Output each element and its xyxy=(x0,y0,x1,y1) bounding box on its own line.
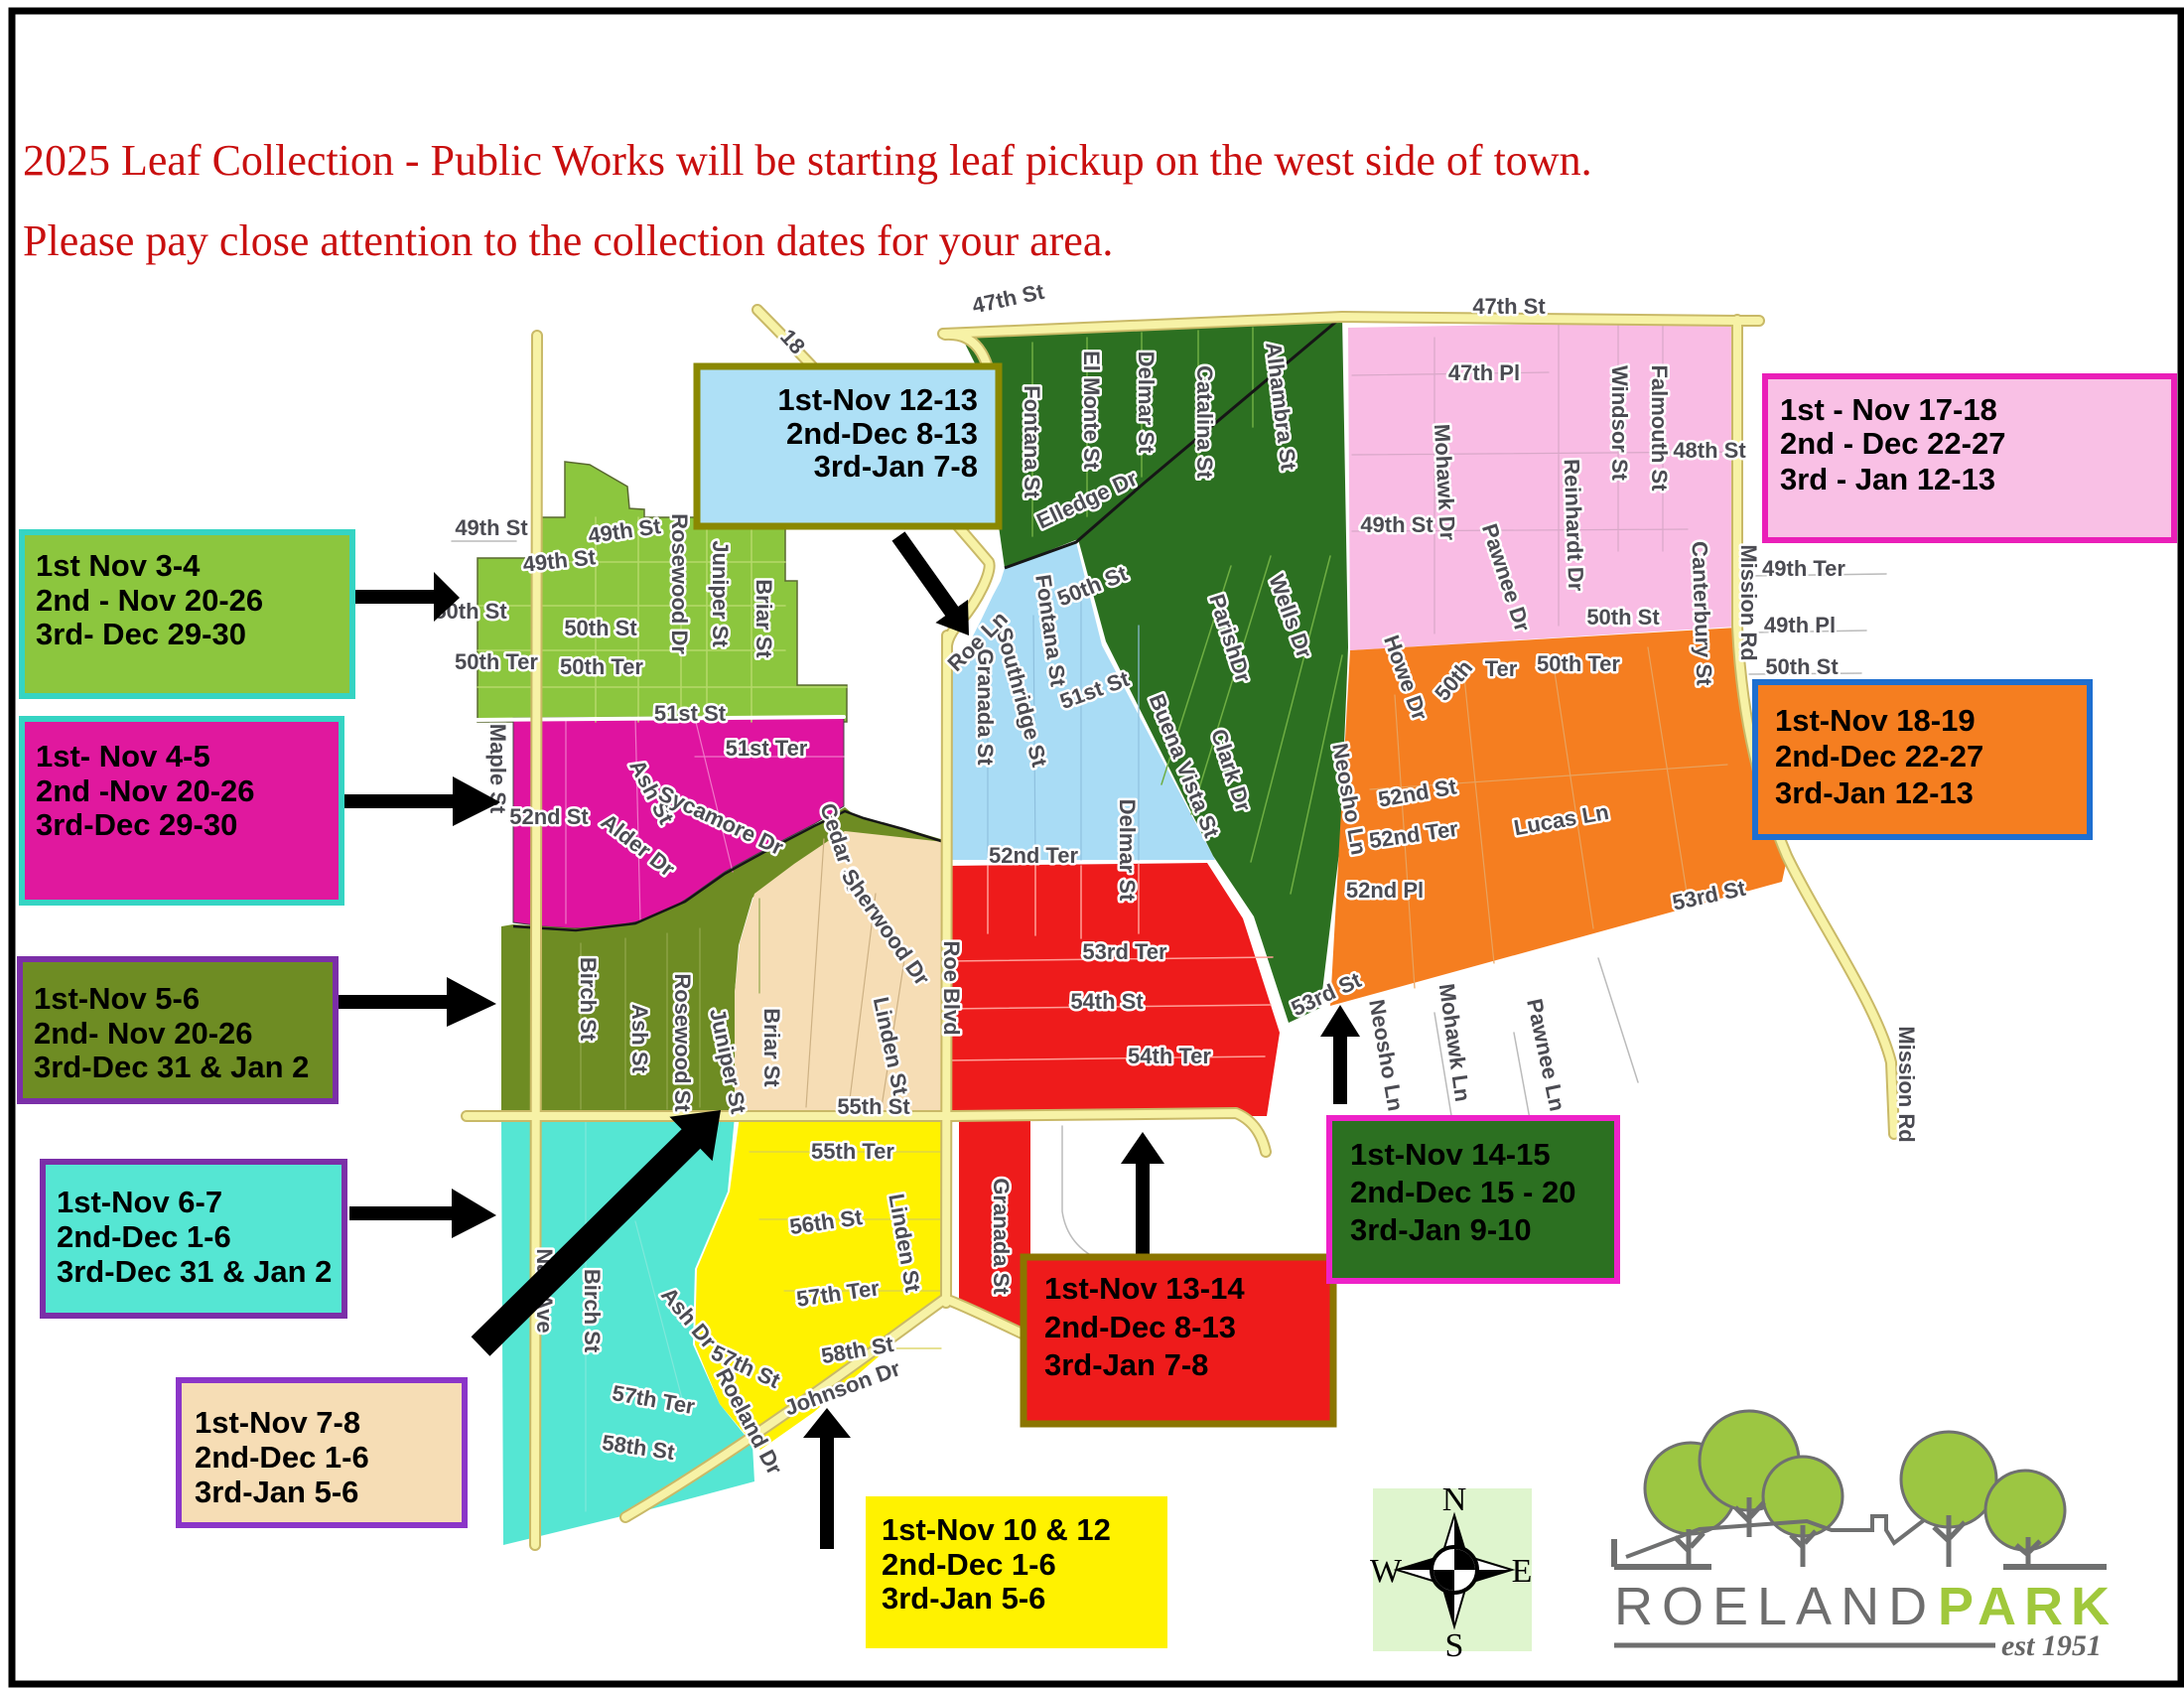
svg-text:Catalina St: Catalina St xyxy=(1192,365,1217,479)
svg-text:3rd-Jan 5-6: 3rd-Jan 5-6 xyxy=(882,1581,1045,1616)
svg-text:1st- Nov 4-5: 1st- Nov 4-5 xyxy=(36,739,210,774)
svg-text:2nd - Dec 22-27: 2nd - Dec 22-27 xyxy=(1780,426,2005,461)
svg-text:2nd - Nov 20-26: 2nd - Nov 20-26 xyxy=(36,583,263,618)
svg-text:1st - Nov 17-18: 1st - Nov 17-18 xyxy=(1780,392,1997,427)
svg-text:est 1951: est 1951 xyxy=(2001,1629,2102,1662)
svg-text:Delmar St: Delmar St xyxy=(1115,799,1140,902)
svg-text:Birch St: Birch St xyxy=(580,1269,605,1353)
svg-text:Ter: Ter xyxy=(1485,656,1518,681)
svg-text:50th St: 50th St xyxy=(1586,605,1660,630)
svg-text:Windsor St: Windsor St xyxy=(1607,365,1632,482)
svg-text:Mission Rd: Mission Rd xyxy=(1736,544,1761,660)
svg-text:Birch St: Birch St xyxy=(576,957,601,1042)
svg-text:1st-Nov 5-6: 1st-Nov 5-6 xyxy=(34,981,200,1016)
svg-text:3rd-Jan 7-8: 3rd-Jan 7-8 xyxy=(1044,1347,1208,1382)
svg-text:1st-Nov 14-15: 1st-Nov 14-15 xyxy=(1350,1137,1551,1172)
svg-text:49th St: 49th St xyxy=(455,515,528,540)
svg-text:48th St: 48th St xyxy=(1673,438,1746,463)
svg-text:2nd-Dec 22-27: 2nd-Dec 22-27 xyxy=(1775,739,1983,774)
svg-text:52nd St: 52nd St xyxy=(509,804,589,829)
svg-text:1st-Nov 18-19: 1st-Nov 18-19 xyxy=(1775,703,1976,738)
svg-text:49th Pl: 49th Pl xyxy=(1764,613,1836,637)
svg-text:3rd- Dec 29-30: 3rd- Dec 29-30 xyxy=(36,617,246,651)
svg-text:52nd Pl: 52nd Pl xyxy=(1346,878,1424,903)
svg-text:51st St: 51st St xyxy=(654,701,727,726)
svg-text:Granada St: Granada St xyxy=(989,1178,1014,1295)
svg-text:47th St: 47th St xyxy=(1472,294,1546,319)
svg-text:3rd-Jan 5-6: 3rd-Jan 5-6 xyxy=(195,1475,358,1509)
svg-text:54th St: 54th St xyxy=(1070,989,1144,1014)
svg-text:2nd-Dec 8-13: 2nd-Dec 8-13 xyxy=(786,416,978,451)
svg-text:W: W xyxy=(1370,1553,1403,1590)
svg-text:PARK: PARK xyxy=(1938,1577,2117,1636)
svg-text:54th Ter: 54th Ter xyxy=(1128,1044,1211,1068)
svg-text:N: N xyxy=(1442,1481,1467,1518)
svg-text:3rd-Dec 31 & Jan 2: 3rd-Dec 31 & Jan 2 xyxy=(34,1050,309,1084)
svg-text:50th St: 50th St xyxy=(1765,654,1839,679)
svg-text:50th Ter: 50th Ter xyxy=(455,649,538,674)
svg-text:49th St: 49th St xyxy=(1360,512,1433,537)
svg-text:52nd Ter: 52nd Ter xyxy=(989,843,1079,868)
svg-text:2nd-Dec 1-6: 2nd-Dec 1-6 xyxy=(57,1219,231,1254)
svg-text:Mission Rd: Mission Rd xyxy=(1894,1026,1919,1142)
svg-text:50th St: 50th St xyxy=(564,616,637,640)
svg-text:3rd-Dec 29-30: 3rd-Dec 29-30 xyxy=(36,807,237,842)
svg-text:55th Ter: 55th Ter xyxy=(811,1139,894,1164)
svg-text:Fontana St: Fontana St xyxy=(1020,385,1044,498)
svg-text:S: S xyxy=(1445,1627,1464,1664)
svg-text:3rd-Jan 12-13: 3rd-Jan 12-13 xyxy=(1775,775,1974,810)
svg-text:1st-Nov 12-13: 1st-Nov 12-13 xyxy=(777,382,978,417)
svg-text:Roe Blvd: Roe Blvd xyxy=(939,940,964,1035)
svg-text:2nd-Dec 15 - 20: 2nd-Dec 15 - 20 xyxy=(1350,1175,1575,1209)
svg-text:3rd - Jan 12-13: 3rd - Jan 12-13 xyxy=(1780,462,1995,496)
svg-text:51st Ter: 51st Ter xyxy=(726,736,808,761)
svg-text:55th St: 55th St xyxy=(837,1094,910,1119)
svg-text:2nd-Dec 1-6: 2nd-Dec 1-6 xyxy=(882,1547,1056,1582)
svg-text:3rd-Jan 9-10: 3rd-Jan 9-10 xyxy=(1350,1212,1532,1247)
svg-text:Granada St: Granada St xyxy=(973,648,998,766)
svg-text:1st-Nov 10 & 12: 1st-Nov 10 & 12 xyxy=(882,1512,1111,1547)
svg-text:1st-Nov 6-7: 1st-Nov 6-7 xyxy=(57,1185,222,1219)
svg-text:Delmar St: Delmar St xyxy=(1134,352,1159,454)
svg-text:Rosewood Dr: Rosewood Dr xyxy=(667,513,692,654)
svg-text:E: E xyxy=(1512,1553,1533,1590)
svg-text:50th Ter: 50th Ter xyxy=(1537,651,1620,676)
svg-text:Reinhardt Dr: Reinhardt Dr xyxy=(1560,459,1589,592)
svg-text:Please pay close attention to: Please pay close attention to the collec… xyxy=(23,216,1113,265)
svg-text:1st-Nov 7-8: 1st-Nov 7-8 xyxy=(195,1405,360,1440)
svg-text:1st-Nov 13-14: 1st-Nov 13-14 xyxy=(1044,1271,1245,1306)
svg-text:Briar St: Briar St xyxy=(759,1008,784,1087)
svg-text:ROELAND: ROELAND xyxy=(1614,1577,1936,1636)
svg-text:53rd Ter: 53rd Ter xyxy=(1082,939,1167,964)
svg-text:2nd-Dec 1-6: 2nd-Dec 1-6 xyxy=(195,1440,369,1475)
svg-text:50th Ter: 50th Ter xyxy=(560,654,643,679)
svg-text:2nd-Dec 8-13: 2nd-Dec 8-13 xyxy=(1044,1310,1236,1344)
svg-text:Canterbury St: Canterbury St xyxy=(1687,541,1716,687)
svg-text:2025 Leaf Collection - Public: 2025 Leaf Collection - Public Works will… xyxy=(23,136,1592,185)
svg-text:2nd -Nov 20-26: 2nd -Nov 20-26 xyxy=(36,774,255,808)
svg-text:Falmouth St: Falmouth St xyxy=(1647,364,1672,492)
svg-text:3rd-Dec 31 & Jan 2: 3rd-Dec 31 & Jan 2 xyxy=(57,1254,332,1289)
svg-text:Juniper St: Juniper St xyxy=(708,540,733,647)
svg-text:Briar St: Briar St xyxy=(751,579,776,658)
svg-text:Ash St: Ash St xyxy=(627,1004,652,1073)
svg-text:El Monte St: El Monte St xyxy=(1079,351,1104,470)
svg-text:3rd-Jan 7-8: 3rd-Jan 7-8 xyxy=(814,449,978,484)
svg-text:47th Pl: 47th Pl xyxy=(1448,360,1520,385)
svg-text:1st Nov 3-4: 1st Nov 3-4 xyxy=(36,548,201,583)
svg-text:49th Ter: 49th Ter xyxy=(1762,556,1845,581)
svg-text:Rosewood St: Rosewood St xyxy=(670,973,695,1112)
svg-text:2nd- Nov 20-26: 2nd- Nov 20-26 xyxy=(34,1016,253,1051)
